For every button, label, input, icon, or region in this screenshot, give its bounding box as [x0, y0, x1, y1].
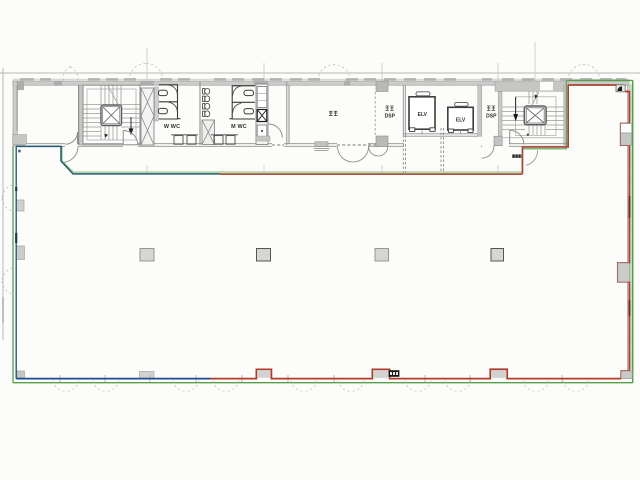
svg-text:DSP: DSP — [486, 114, 497, 120]
svg-text:ELV: ELV — [418, 112, 428, 118]
svg-text:W WC: W WC — [164, 124, 180, 130]
svg-text:DSP: DSP — [385, 114, 396, 120]
svg-text:ELV: ELV — [456, 118, 466, 124]
svg-text:M WC: M WC — [231, 124, 247, 130]
